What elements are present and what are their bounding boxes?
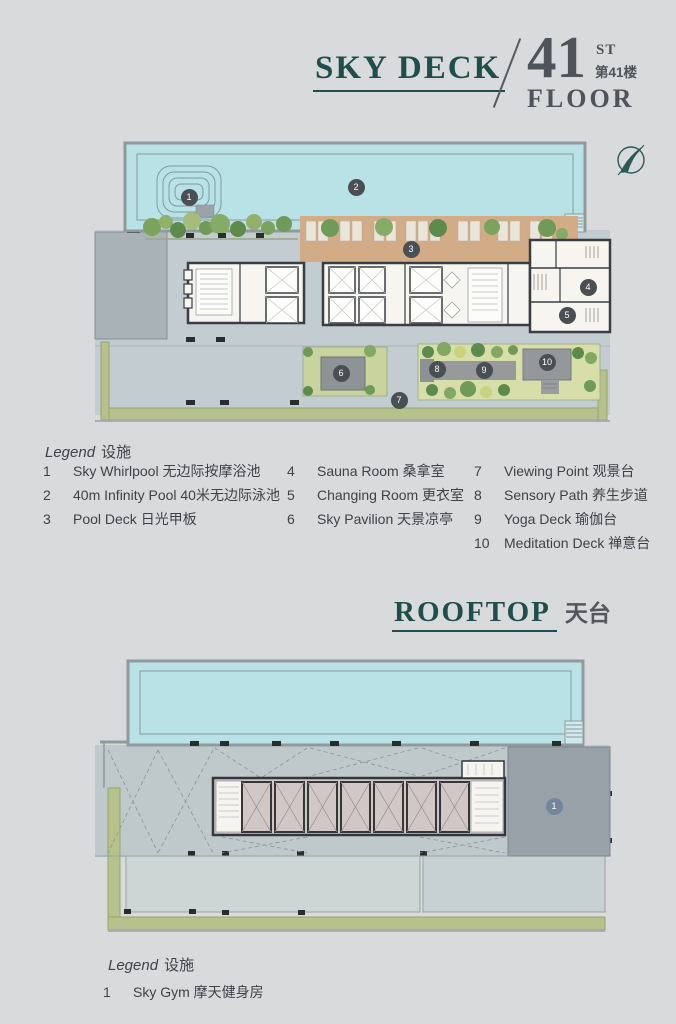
marker-sky-pavilion: 6	[333, 365, 350, 382]
legend-word: Legend	[108, 957, 158, 974]
legend-word-cn: 设施	[164, 957, 194, 974]
legend-item: 5Changing Room 更衣室	[287, 483, 464, 507]
rooftop-title: ROOFTOP天台	[392, 594, 611, 629]
marker-sensory-path: 8	[429, 361, 446, 378]
skydeck-legend-col2: 4Sauna Room 桑拿室 5Changing Room 更衣室 6Sky …	[287, 459, 464, 531]
legend-item: 3Pool Deck 日光甲板	[43, 507, 280, 531]
skydeck-legend-col3: 7Viewing Point 观景台 8Sensory Path 养生步道 9Y…	[474, 459, 650, 555]
legend-item: 9Yoga Deck 瑜伽台	[474, 507, 650, 531]
legend-item: 7Viewing Point 观景台	[474, 459, 650, 483]
legend-item: 1Sky Gym 摩天健身房	[103, 980, 264, 1004]
marker-viewing-point: 7	[391, 392, 408, 409]
legend-item: 4Sauna Room 桑拿室	[287, 459, 464, 483]
north-compass-icon	[618, 145, 644, 175]
rooftop-floor-plan	[95, 661, 612, 931]
rooftop-title-en: ROOFTOP	[392, 596, 557, 632]
brochure-page: SKY DECK 41 ST 第41楼 FLOOR	[0, 0, 676, 1024]
legend-item: 6Sky Pavilion 天景凉亭	[287, 507, 464, 531]
skydeck-floor-plan	[95, 143, 644, 421]
legend-item: 10Meditation Deck 禅意台	[474, 531, 650, 555]
marker-infinity-pool: 2	[348, 179, 365, 196]
building-core-west	[184, 263, 304, 323]
skydeck-legend-col1: 1Sky Whirlpool 无边际按摩浴池 240m Infinity Poo…	[43, 459, 280, 531]
building-core-lifts	[323, 263, 530, 325]
legend-item: 1Sky Whirlpool 无边际按摩浴池	[43, 459, 280, 483]
marker-sauna-room: 4	[580, 279, 597, 296]
marker-sky-gym: 1	[546, 798, 563, 815]
marker-changing-room: 5	[559, 307, 576, 324]
marker-pool-deck: 3	[403, 241, 420, 258]
marker-sky-whirlpool: 1	[181, 189, 198, 206]
rooftop-legend-title: Legend设施	[108, 954, 194, 975]
rooftop-legend-col1: 1Sky Gym 摩天健身房	[103, 980, 264, 1004]
legend-item: 240m Infinity Pool 40米无边际泳池	[43, 483, 280, 507]
marker-meditation-deck: 10	[539, 354, 556, 371]
legend-item: 8Sensory Path 养生步道	[474, 483, 650, 507]
marker-yoga-deck: 9	[476, 362, 493, 379]
rooftop-title-cn: 天台	[565, 600, 611, 626]
